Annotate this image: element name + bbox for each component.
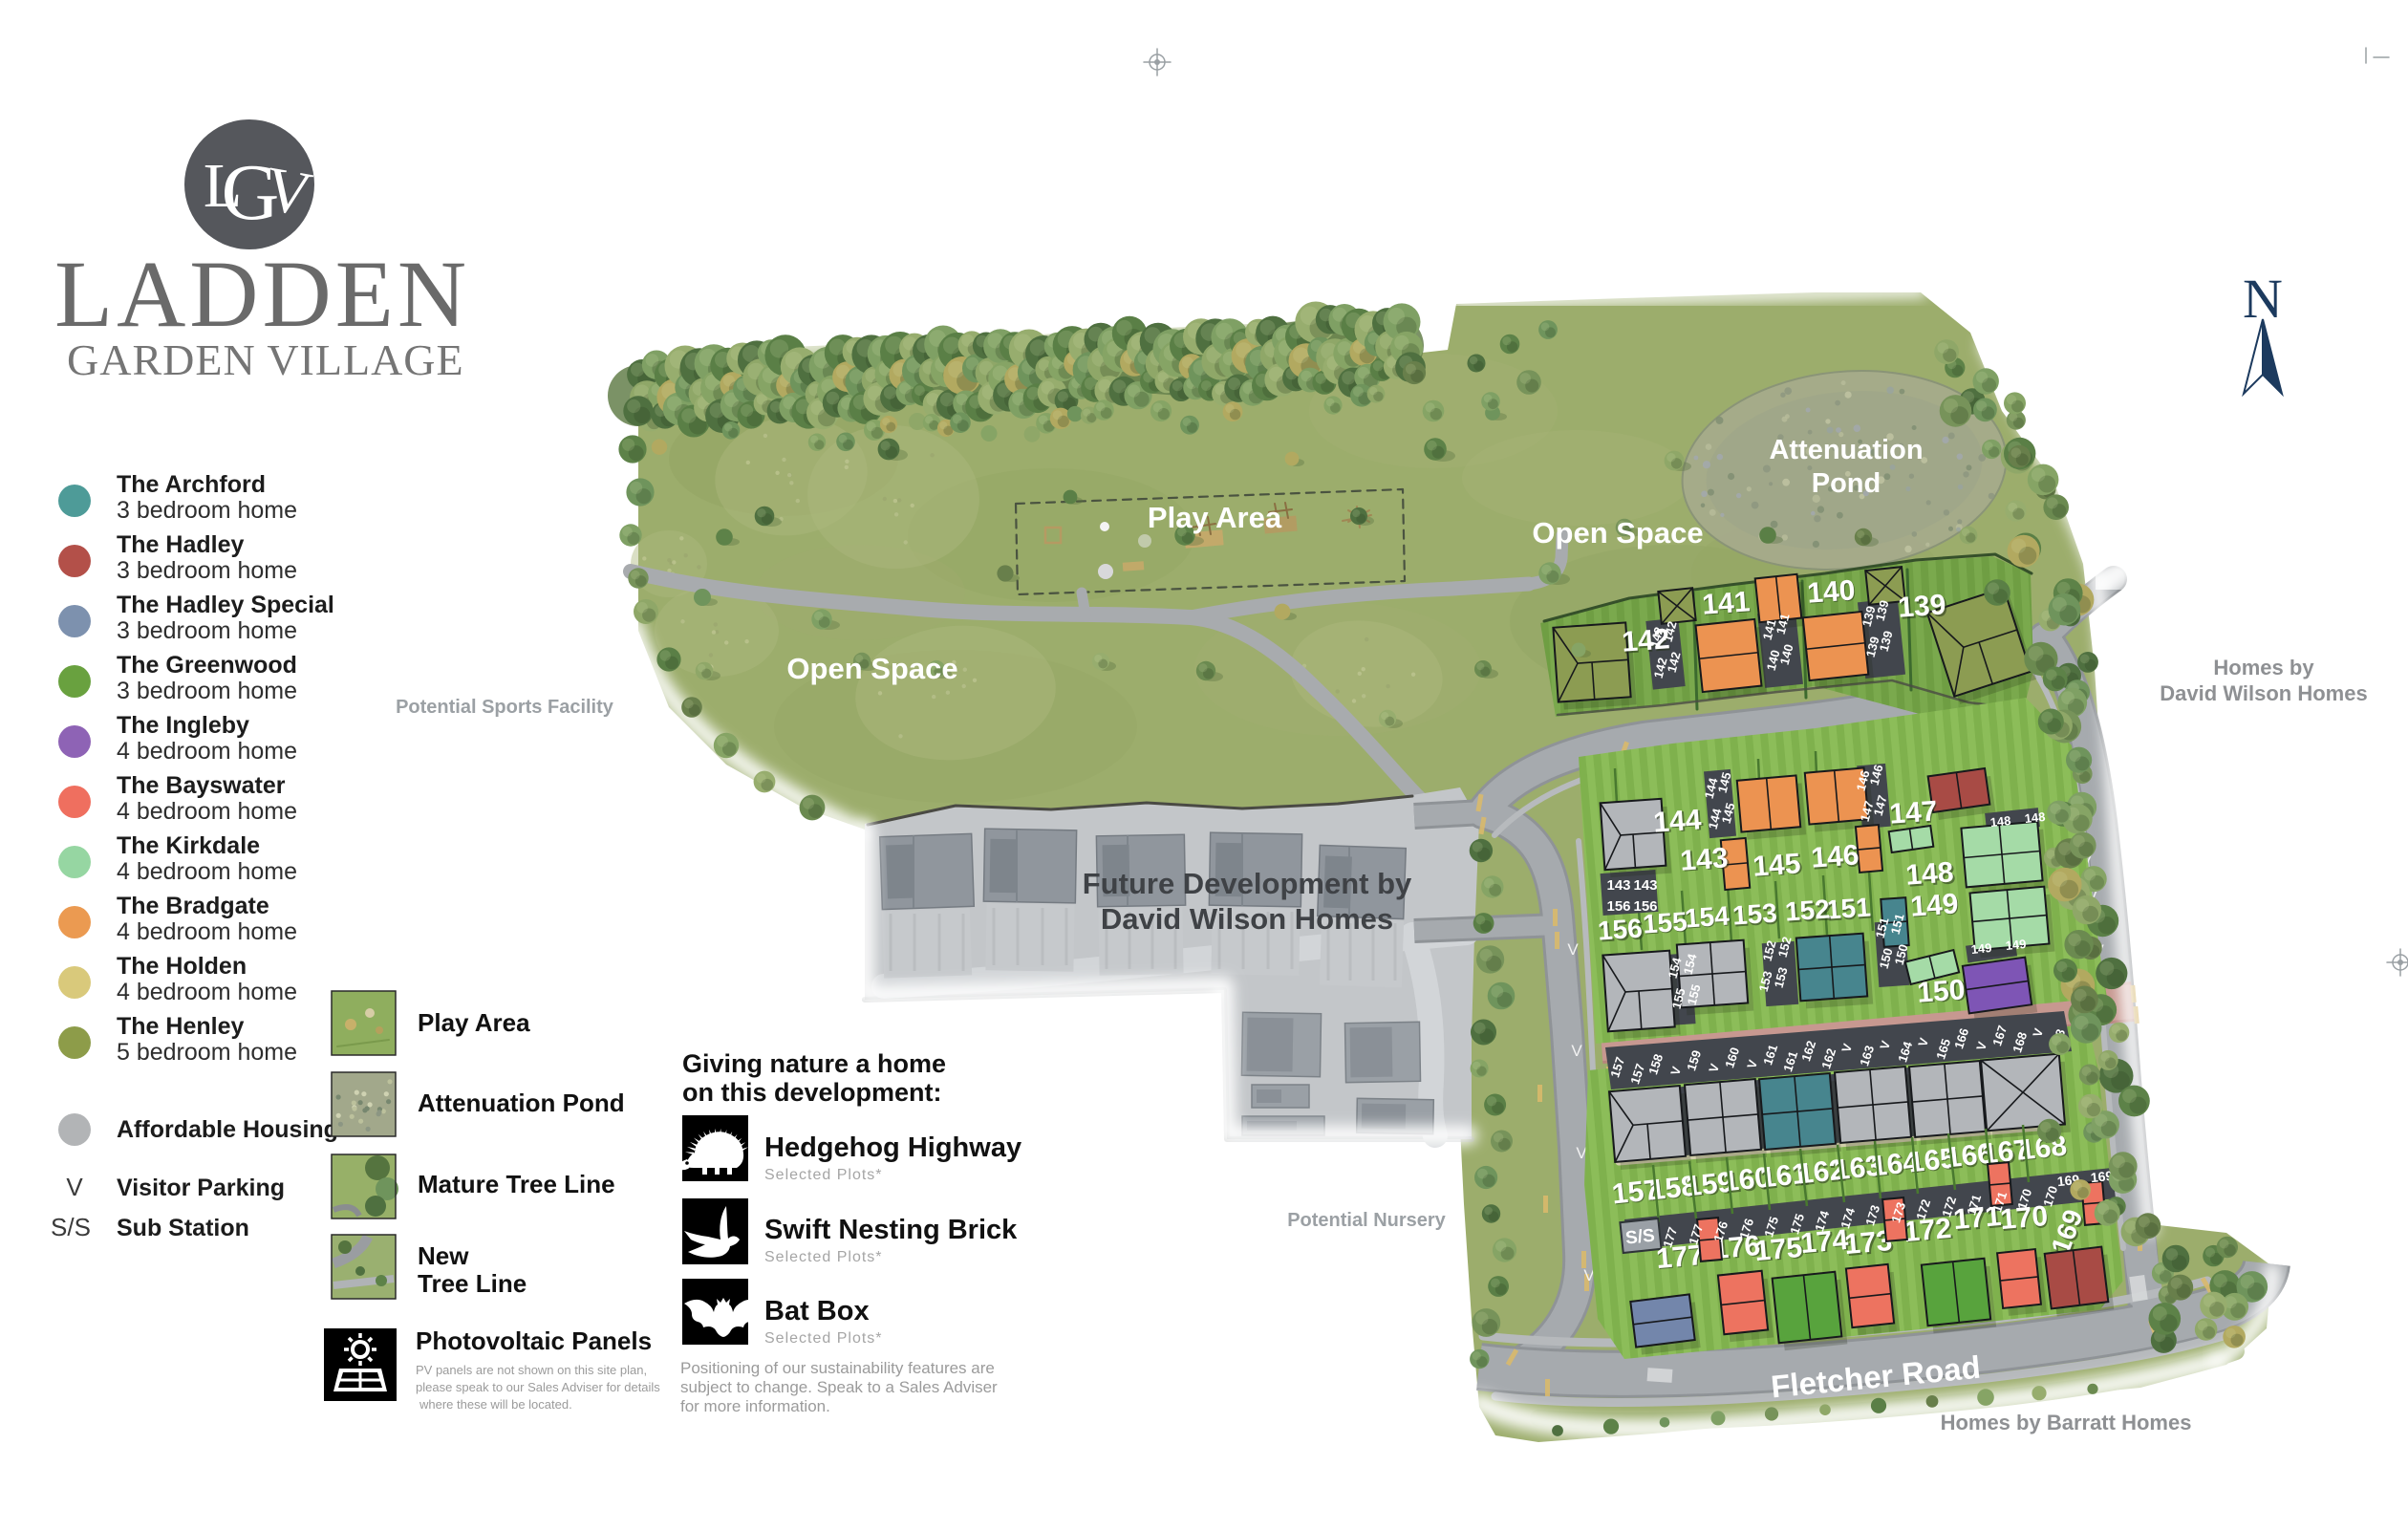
svg-text:The Archford: The Archford	[117, 471, 266, 498]
svg-text:150: 150	[1916, 974, 1966, 1008]
svg-text:for more information.: for more information.	[680, 1397, 830, 1415]
svg-text:The Kirkdale: The Kirkdale	[117, 832, 260, 859]
svg-text:Open Space: Open Space	[786, 652, 957, 685]
svg-text:The Hadley Special: The Hadley Special	[117, 592, 334, 618]
svg-text:Potential Sports Facility: Potential Sports Facility	[396, 697, 614, 718]
svg-text:David Wilson Homes: David Wilson Homes	[1101, 902, 1393, 936]
svg-text:Affordable Housing: Affordable Housing	[117, 1116, 338, 1143]
svg-text:Bat Box: Bat Box	[764, 1296, 870, 1326]
svg-text:3 bedroom home: 3 bedroom home	[117, 617, 297, 644]
svg-text:LADDEN: LADDEN	[54, 241, 470, 347]
svg-text:GARDEN VILLAGE: GARDEN VILLAGE	[67, 335, 464, 384]
svg-text:please speak to our Sales Advi: please speak to our Sales Adviser for de…	[416, 1380, 660, 1394]
svg-text:V: V	[1567, 940, 1579, 959]
svg-text:141: 141	[1701, 586, 1751, 620]
svg-text:S/S: S/S	[51, 1213, 91, 1241]
svg-text:149: 149	[1909, 888, 1959, 922]
svg-text:Swift Nesting Brick: Swift Nesting Brick	[764, 1215, 1018, 1245]
svg-text:The Holden: The Holden	[117, 953, 247, 980]
svg-text:Attenuation: Attenuation	[1769, 435, 1923, 465]
svg-text:144: 144	[1652, 804, 1703, 838]
svg-text:The Ingleby: The Ingleby	[117, 712, 249, 739]
svg-text:Positioning of our sustainabil: Positioning of our sustainability featur…	[680, 1359, 995, 1377]
svg-text:149: 149	[2005, 937, 2027, 953]
svg-text:145: 145	[1752, 848, 1801, 882]
svg-text:Play Area: Play Area	[1148, 501, 1282, 534]
svg-text:Mature Tree Line: Mature Tree Line	[418, 1170, 615, 1198]
svg-text:156: 156	[1597, 913, 1644, 945]
svg-text:3 bedroom home: 3 bedroom home	[117, 678, 297, 704]
svg-text:The Greenwood: The Greenwood	[117, 652, 297, 679]
svg-text:154: 154	[1684, 900, 1731, 933]
svg-text:147: 147	[1888, 795, 1938, 830]
svg-text:143: 143	[1633, 877, 1657, 894]
svg-text:4 bedroom home: 4 bedroom home	[117, 798, 297, 825]
svg-text:Selected Plots*: Selected Plots*	[764, 1330, 883, 1347]
svg-text:Sub Station: Sub Station	[117, 1215, 249, 1241]
svg-text:The Hadley: The Hadley	[117, 531, 244, 558]
svg-text:4 bedroom home: 4 bedroom home	[117, 979, 297, 1005]
svg-text:Tree Line: Tree Line	[418, 1269, 527, 1298]
svg-text:Play Area: Play Area	[418, 1008, 530, 1037]
svg-text:subject to change. Speak to a: subject to change. Speak to a Sales Advi…	[680, 1378, 998, 1396]
svg-text:5 bedroom home: 5 bedroom home	[117, 1039, 297, 1066]
svg-text:New: New	[418, 1241, 469, 1270]
svg-text:Pond: Pond	[1812, 468, 1881, 499]
svg-text:143: 143	[1606, 877, 1630, 894]
svg-text:156: 156	[1633, 898, 1657, 915]
svg-text:V: V	[66, 1173, 83, 1201]
svg-text:153: 153	[1731, 897, 1778, 930]
svg-text:148: 148	[2024, 809, 2046, 826]
svg-text:Hedgehog Highway: Hedgehog Highway	[764, 1132, 1021, 1163]
svg-text:Homes by Barratt Homes: Homes by Barratt Homes	[1941, 1411, 2192, 1434]
svg-text:139: 139	[1897, 589, 1946, 623]
svg-text:where these will be located.: where these will be located.	[419, 1397, 572, 1412]
svg-text:David Wilson Homes: David Wilson Homes	[2160, 681, 2367, 705]
svg-text:146: 146	[1810, 839, 1860, 873]
svg-text:Photovoltaic Panels: Photovoltaic Panels	[416, 1326, 652, 1355]
svg-text:175: 175	[1753, 1232, 1804, 1267]
svg-text:Selected Plots*: Selected Plots*	[764, 1167, 883, 1183]
svg-text:148: 148	[1904, 856, 1954, 891]
svg-text:4 bedroom home: 4 bedroom home	[117, 918, 297, 945]
svg-text:156: 156	[1606, 898, 1630, 915]
svg-text:140: 140	[1806, 574, 1856, 609]
svg-text:4 bedroom home: 4 bedroom home	[117, 738, 297, 765]
svg-text:149: 149	[1970, 940, 1992, 957]
svg-text:Giving nature a home: Giving nature a home	[682, 1049, 946, 1078]
svg-text:4 bedroom home: 4 bedroom home	[117, 858, 297, 885]
svg-text:The Henley: The Henley	[117, 1013, 244, 1040]
svg-text:3 bedroom home: 3 bedroom home	[117, 497, 297, 524]
svg-text:Future Development by: Future Development by	[1083, 867, 1412, 900]
svg-text:Visitor Parking: Visitor Parking	[117, 1175, 285, 1201]
svg-text:Selected Plots*: Selected Plots*	[764, 1249, 883, 1265]
svg-text:S/S: S/S	[1624, 1225, 1656, 1248]
svg-text:PV panels are not shown on thi: PV panels are not shown on this site pla…	[416, 1363, 647, 1377]
svg-text:3 bedroom home: 3 bedroom home	[117, 557, 297, 584]
svg-text:V: V	[1571, 1042, 1582, 1060]
svg-text:Attenuation Pond: Attenuation Pond	[418, 1089, 625, 1117]
svg-text:152: 152	[1784, 894, 1831, 926]
svg-text:The Bayswater: The Bayswater	[117, 772, 286, 799]
svg-text:Potential Nursery: Potential Nursery	[1287, 1210, 1446, 1231]
svg-text:The Bradgate: The Bradgate	[117, 893, 269, 919]
svg-text:on this development:: on this development:	[682, 1078, 942, 1107]
svg-text:Homes by: Homes by	[2213, 656, 2314, 679]
svg-text:143: 143	[1679, 842, 1729, 876]
svg-text:148: 148	[1989, 813, 2011, 830]
svg-text:Open Space: Open Space	[1532, 516, 1703, 550]
